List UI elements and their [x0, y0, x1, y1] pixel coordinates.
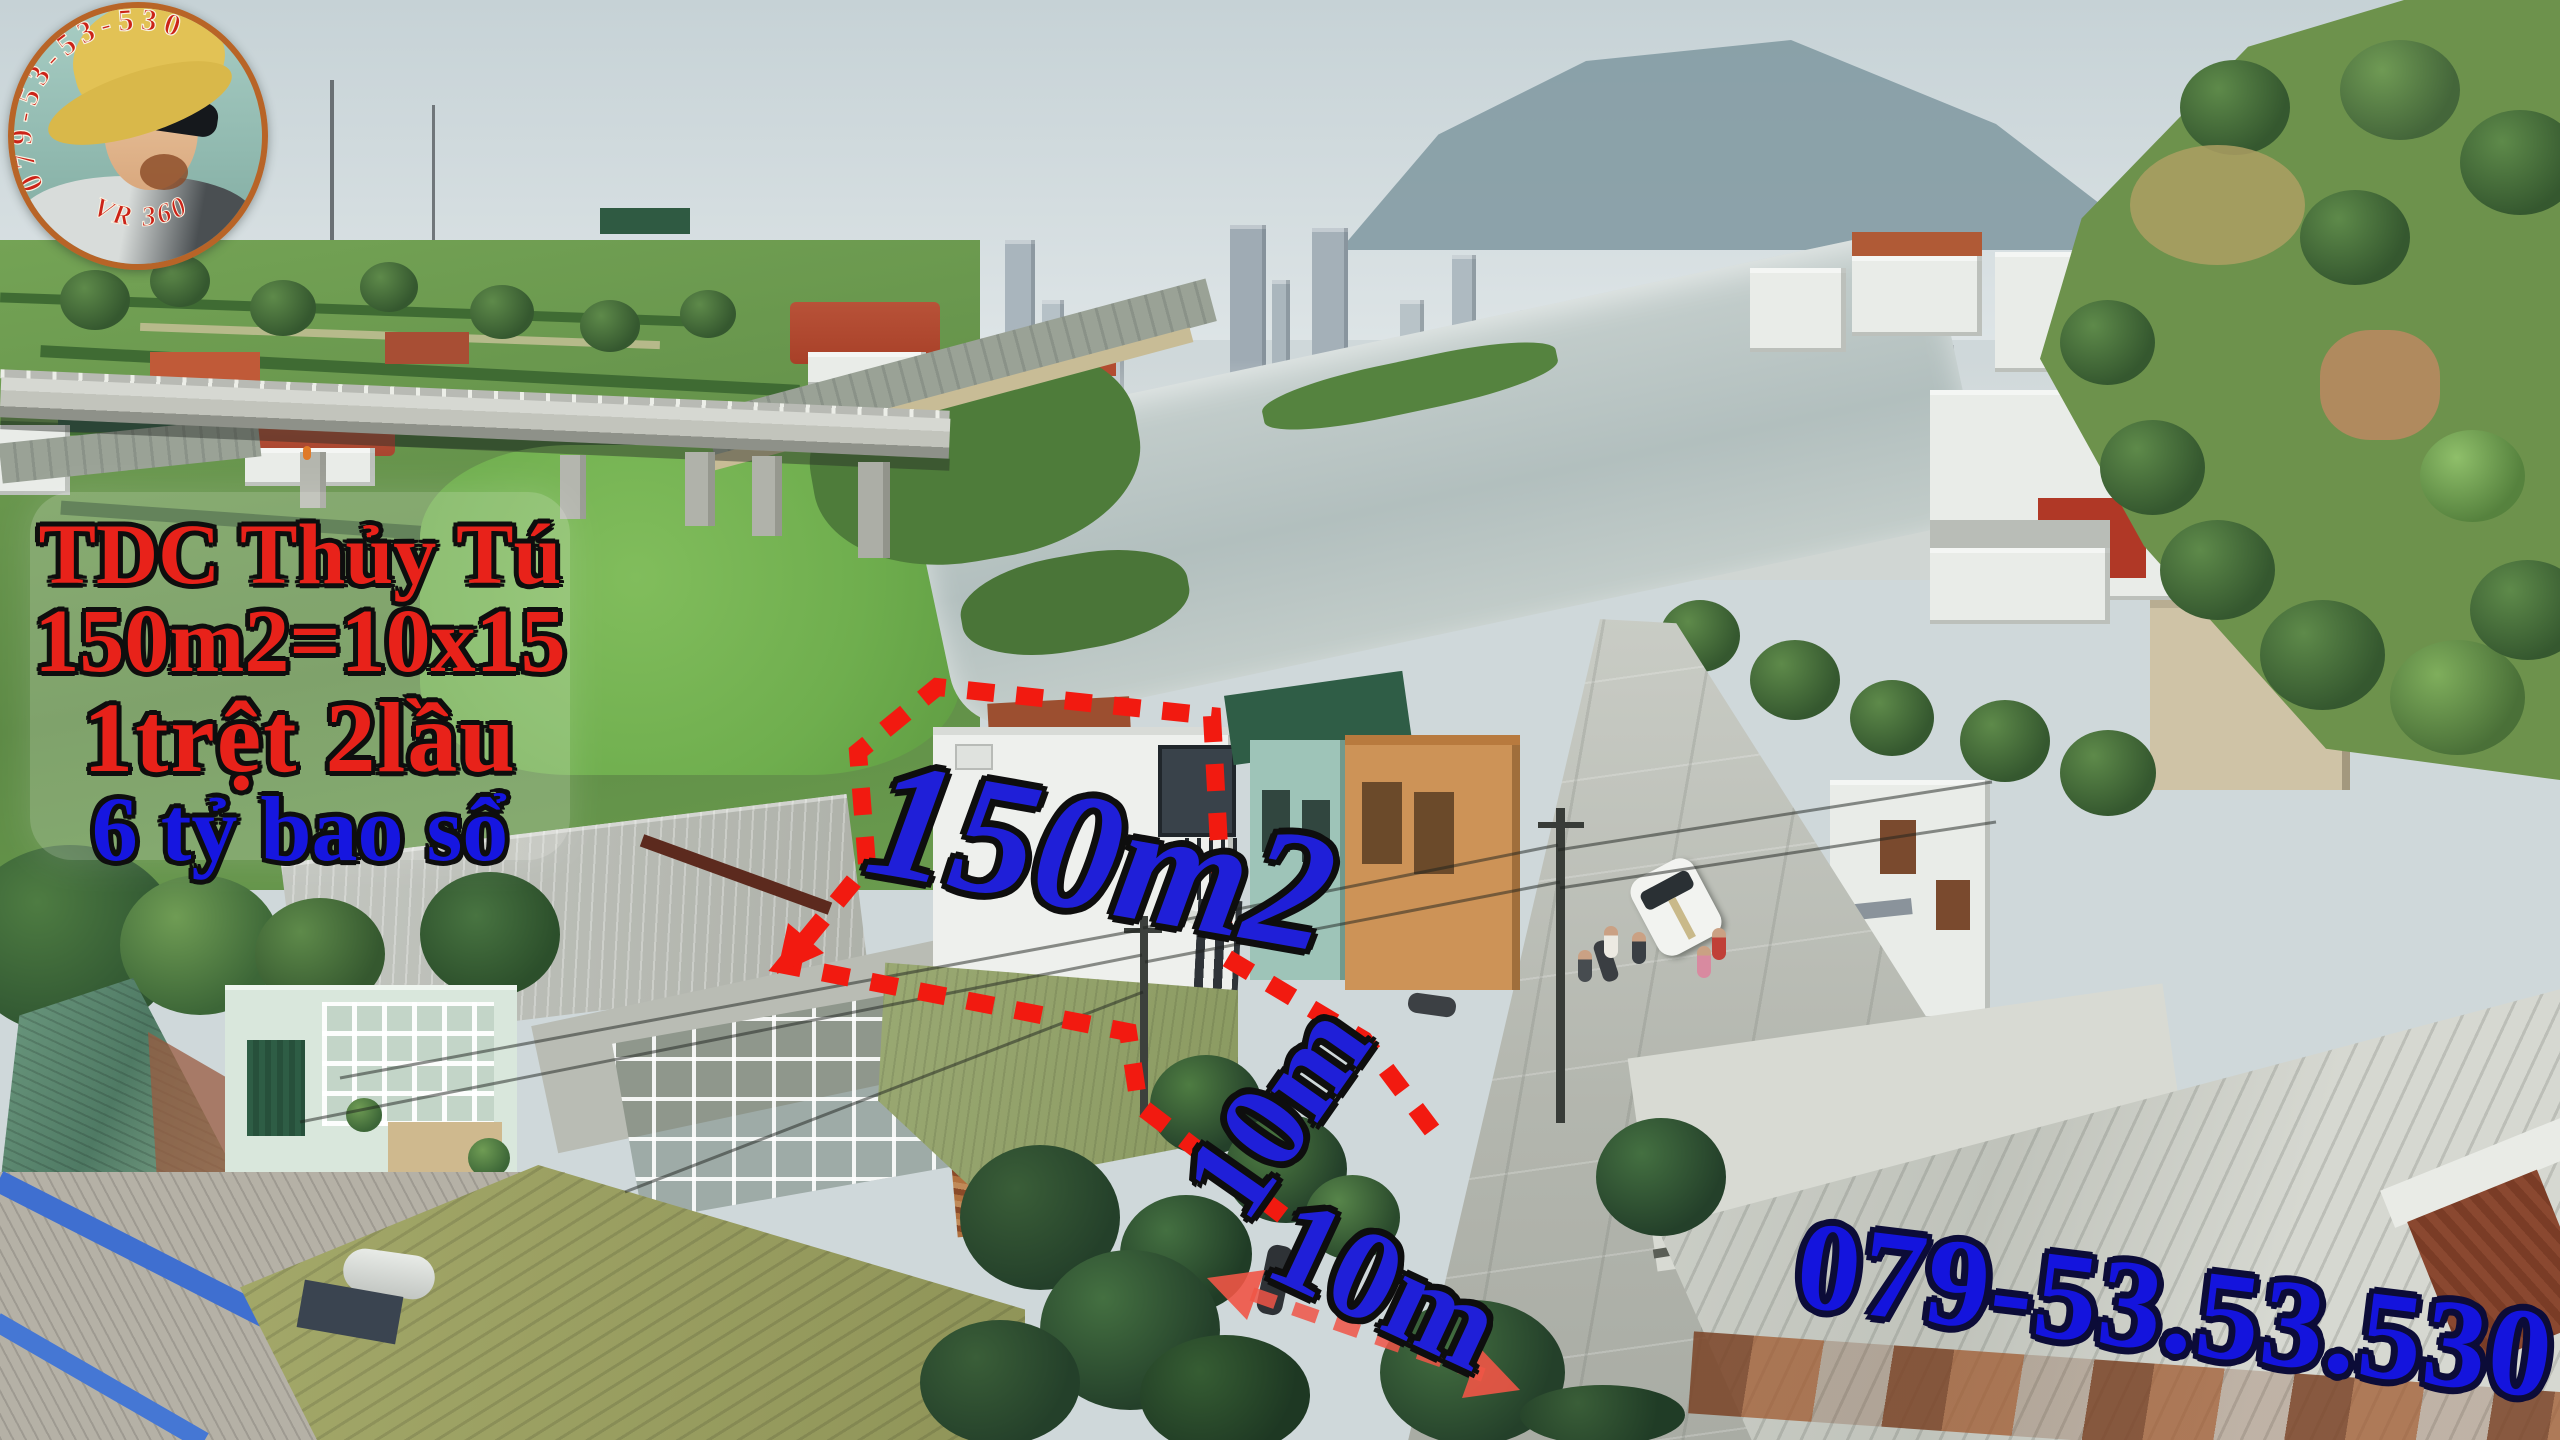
logo-curved-text: 079-53-53-530 VR 360: [14, 8, 262, 264]
aerial-photo-scene: TDC Thủy Tú 150m2=10x15 1trệt 2lầu 6 tỷ …: [0, 0, 2560, 1440]
svg-text:VR 360: VR 360: [89, 190, 195, 234]
info-line-4: 6 tỷ bao sổ: [30, 776, 570, 882]
logo-vr-label: VR 360: [89, 190, 195, 234]
logo-phone-arc: 079-53-53-530: [14, 8, 191, 197]
info-line-2: 150m2=10x15: [30, 590, 570, 693]
info-line-1: TDC Thủy Tú: [30, 504, 570, 604]
agent-logo: 079-53-53-530 VR 360: [8, 2, 268, 270]
svg-text:079-53-53-530: 079-53-53-530: [14, 8, 191, 197]
info-box: TDC Thủy Tú 150m2=10x15 1trệt 2lầu 6 tỷ …: [30, 492, 570, 860]
